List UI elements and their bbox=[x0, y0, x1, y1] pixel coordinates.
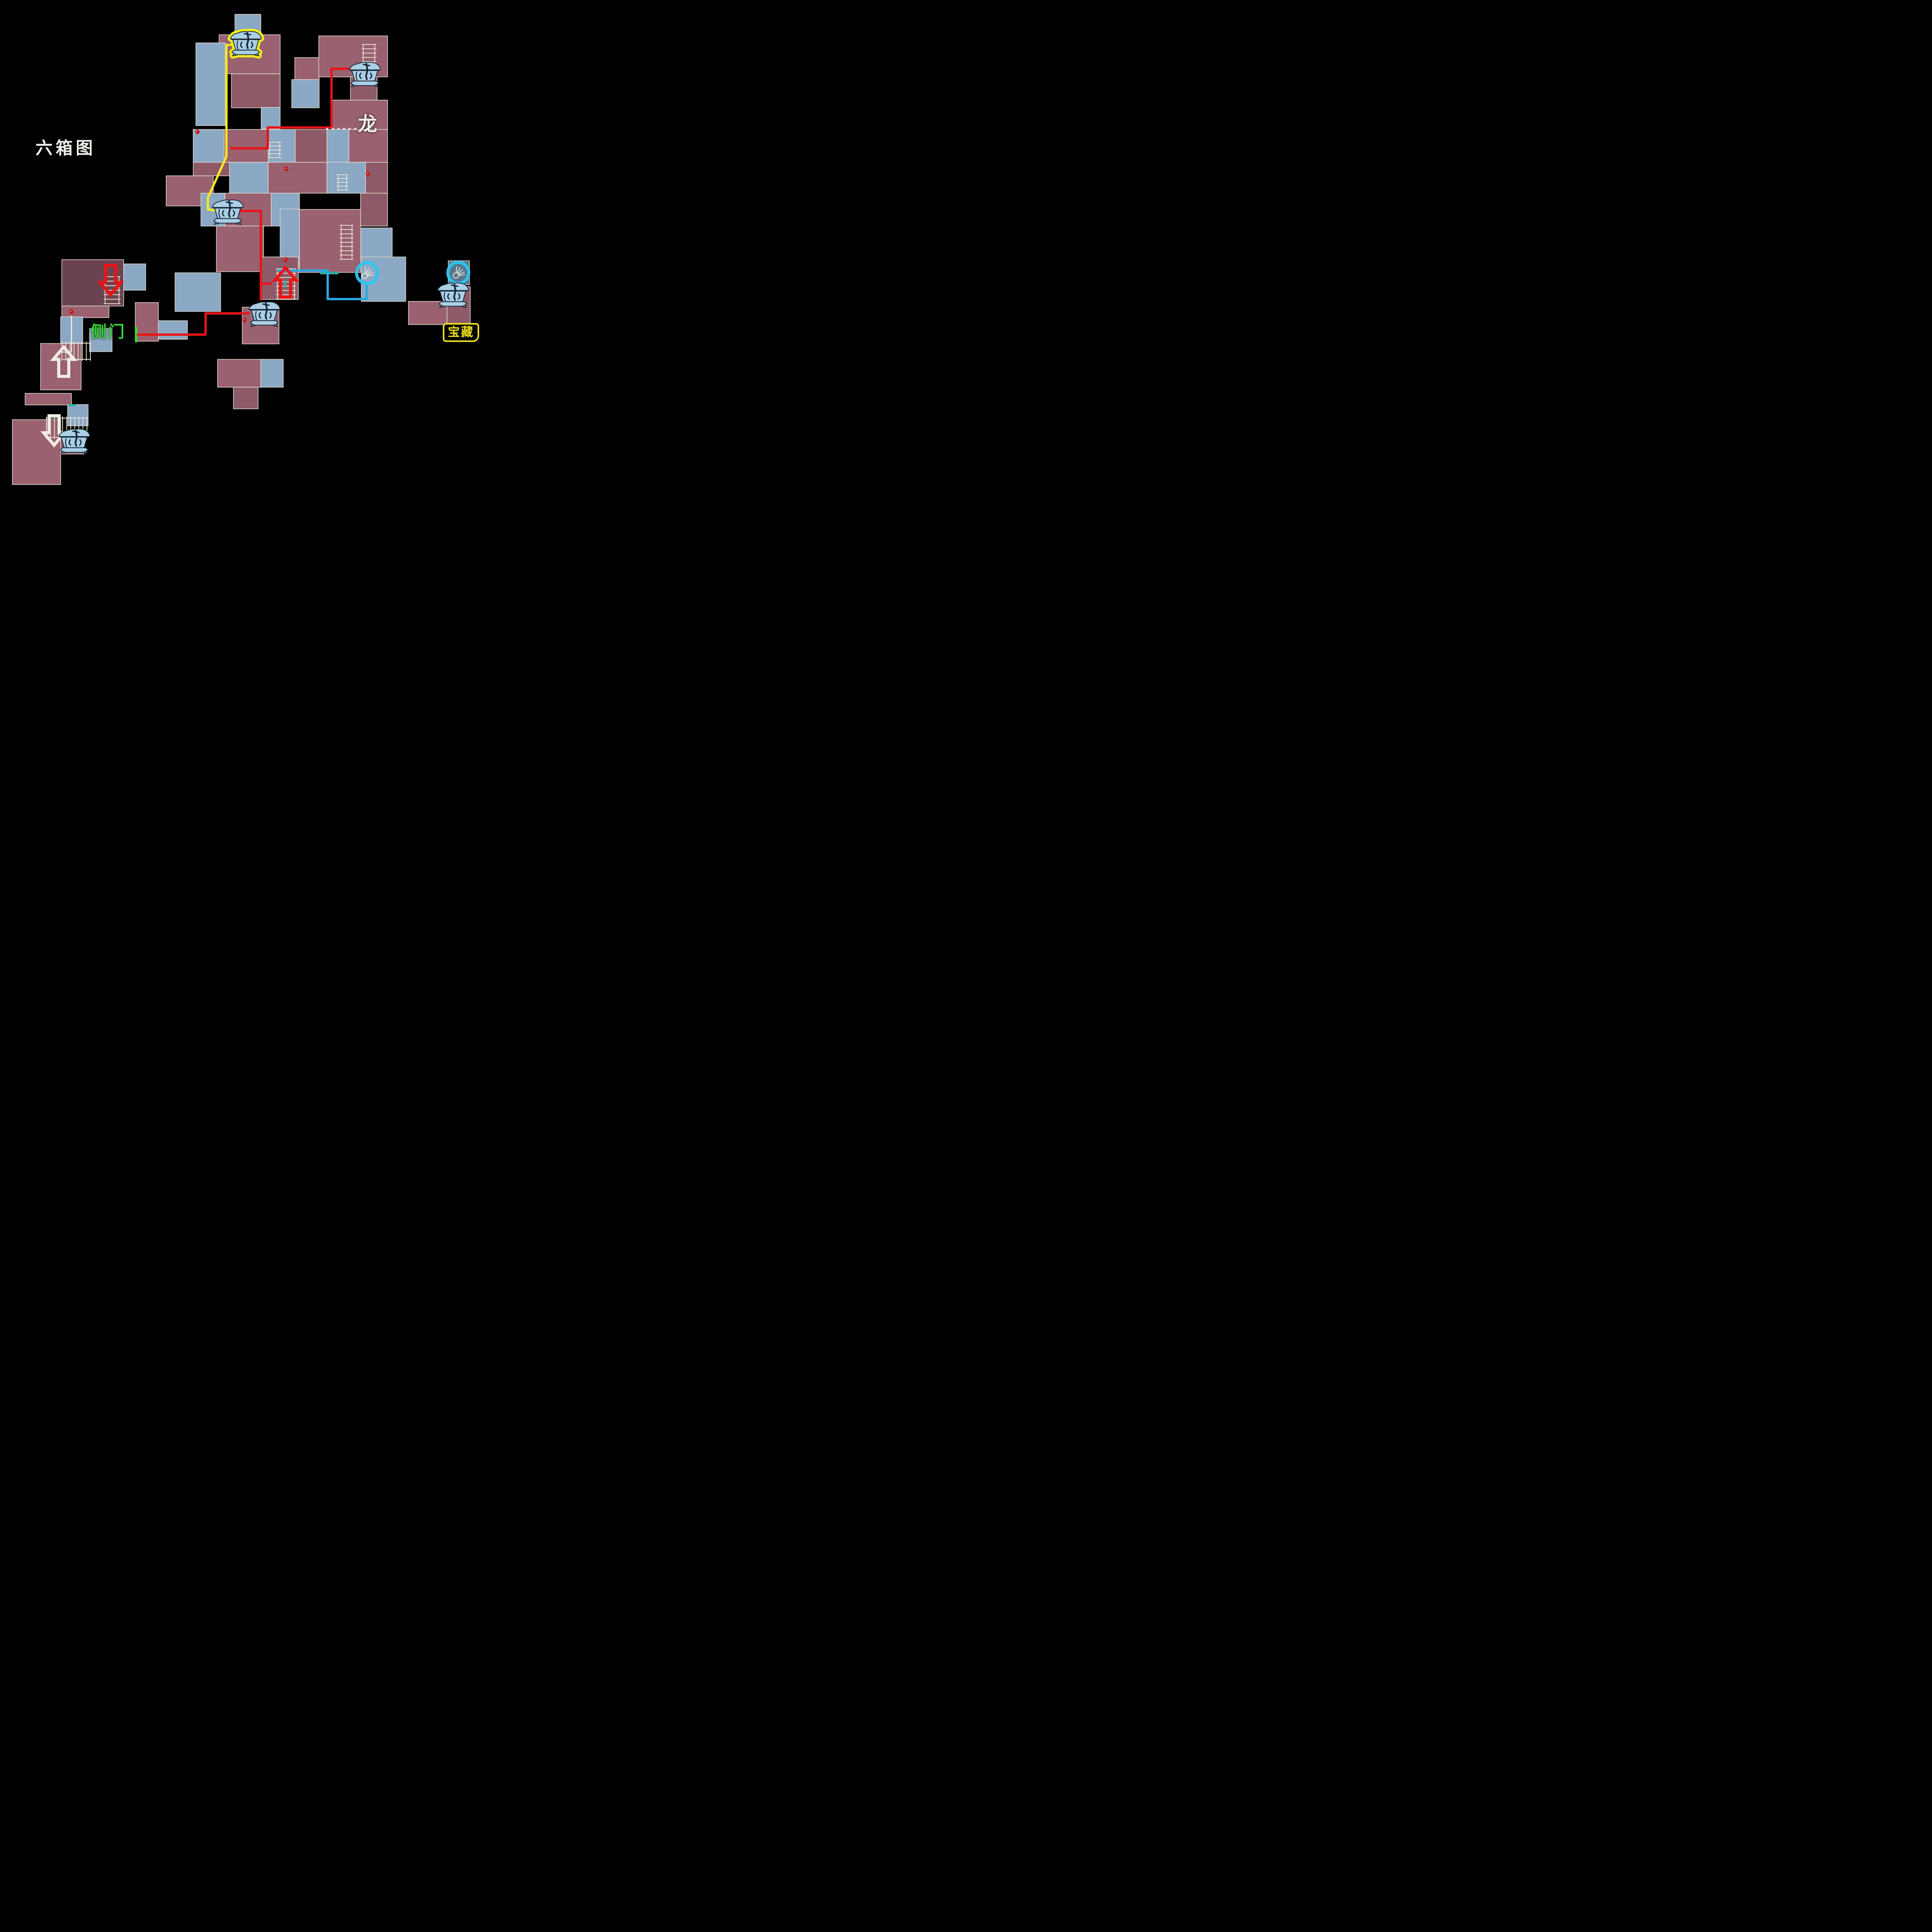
map-room bbox=[295, 129, 327, 162]
dungeon-map bbox=[0, 0, 495, 495]
map-room bbox=[261, 107, 280, 129]
chest-part bbox=[351, 81, 379, 86]
side-door-label: 侧门 bbox=[90, 324, 126, 340]
chest-part bbox=[440, 291, 466, 301]
chest-part bbox=[250, 321, 278, 325]
map-room bbox=[230, 162, 268, 193]
chest-part bbox=[214, 208, 240, 218]
chest-icon bbox=[230, 31, 261, 56]
chest-part bbox=[232, 50, 260, 55]
map-room bbox=[158, 321, 187, 339]
treasure-label: 宝藏 bbox=[443, 323, 479, 342]
chest-2-top-right bbox=[349, 62, 380, 87]
map-room bbox=[366, 162, 388, 193]
spiral-step bbox=[365, 267, 366, 273]
teal-door-3 bbox=[68, 404, 76, 406]
chest-part bbox=[60, 448, 88, 452]
map-room bbox=[233, 387, 258, 409]
map-room bbox=[196, 43, 225, 126]
chest-icon bbox=[212, 200, 243, 224]
map-room bbox=[175, 273, 221, 311]
spiral-step bbox=[367, 275, 374, 276]
chest-part bbox=[352, 70, 378, 81]
chest-6-bottom-left bbox=[59, 429, 90, 453]
chest-part bbox=[61, 437, 87, 447]
map-room bbox=[25, 393, 71, 405]
map-room bbox=[62, 306, 109, 318]
map-room bbox=[295, 58, 319, 80]
chest-1-top bbox=[230, 31, 261, 56]
teal-door-1 bbox=[284, 281, 286, 287]
chest-icon bbox=[249, 302, 280, 326]
map-room bbox=[327, 129, 349, 162]
map-room bbox=[361, 228, 392, 258]
map-room bbox=[361, 193, 388, 226]
chest-part bbox=[439, 302, 467, 306]
teal-door-2 bbox=[320, 272, 338, 274]
map-room bbox=[12, 420, 61, 485]
chest-icon bbox=[349, 62, 380, 87]
chest-icon bbox=[437, 283, 468, 307]
map-room bbox=[218, 359, 261, 387]
gem-glint bbox=[285, 259, 286, 260]
map-room bbox=[216, 226, 264, 272]
chest-part bbox=[214, 219, 241, 223]
spiral-step bbox=[456, 266, 457, 273]
map-room bbox=[224, 129, 268, 162]
map-room bbox=[292, 80, 319, 108]
map-room bbox=[124, 264, 146, 290]
chest-4-lower-middle bbox=[249, 302, 280, 326]
gem-glint bbox=[286, 168, 287, 169]
gem-glint bbox=[244, 319, 245, 320]
chest-part bbox=[251, 310, 277, 320]
map-room bbox=[268, 162, 327, 193]
gem-glint bbox=[197, 131, 198, 132]
map-room bbox=[231, 74, 280, 108]
gem-glint bbox=[71, 311, 72, 312]
chest-part bbox=[233, 39, 259, 50]
map-title-label: 六箱图 bbox=[36, 140, 96, 157]
chest-icon bbox=[59, 429, 90, 453]
dragon-label: 龙 bbox=[358, 114, 377, 134]
gem-glint bbox=[367, 173, 368, 174]
map-room bbox=[261, 359, 283, 387]
spiral-step bbox=[459, 275, 465, 275]
chest-3-middle bbox=[212, 200, 243, 224]
map-room bbox=[299, 209, 361, 272]
chest-5-right bbox=[437, 283, 468, 307]
game-map-screenshot: 六箱图 龙 侧门 宝藏 bbox=[0, 0, 495, 495]
